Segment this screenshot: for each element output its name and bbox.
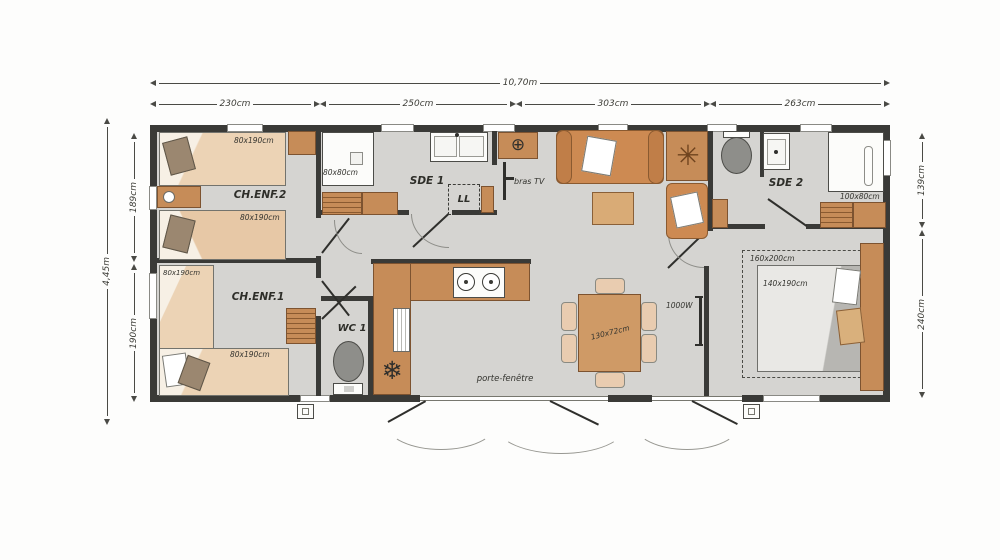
arrow-down-icon [131,396,137,402]
door-swing-arc [496,398,626,454]
bed-size-label: 80x190cm [240,213,280,222]
bed-size-label: 80x190cm [163,269,200,277]
chair [561,302,577,331]
bed-size-label: 80x190cm [230,350,270,359]
outer-wall-bottom [150,395,300,402]
water-heater-badge [344,386,354,392]
chair [595,372,625,388]
sofa-armrest [556,130,572,184]
window [300,395,330,402]
pillow [836,308,865,346]
dresser-drawers [820,202,853,228]
dim-top-1: 230cm [150,98,320,110]
burner-icon [457,273,475,291]
headboard [860,243,884,391]
dim-overall-height: 4,45m [100,118,114,425]
tv-mount-label: bras TV [514,177,544,186]
chair [595,278,625,294]
step-inner [302,408,309,415]
shower-tray [322,132,374,186]
burner-icon [482,273,500,291]
dim-label: 240cm [917,299,927,330]
dresser-top [853,202,886,228]
toilet [721,137,752,174]
cabinet [481,186,494,213]
shower-handle [864,146,873,186]
dim-overall-width: 10,70m [150,76,890,90]
dim-label: 139cm [917,165,927,196]
arrow-right-icon [884,80,890,86]
dim-top-2: 250cm [320,98,516,110]
dim-label: 4,45m [102,257,112,286]
shelf [288,131,316,155]
radiator [699,296,702,346]
bed-size-label: 140x190cm [763,279,808,288]
arrow-left-icon [516,101,522,107]
dresser [286,308,316,344]
radiator-bracket [695,296,703,298]
arrow-up-icon [104,118,110,124]
window [483,124,515,132]
dim-label: 189cm [129,182,139,213]
window [763,395,820,402]
lamp-icon [163,191,175,203]
arrow-down-icon [131,256,137,262]
radiator-power-label: 1000W [666,301,693,310]
dim-top-3: 303cm [516,98,710,110]
arrow-down-icon [104,419,110,425]
dim-label: 230cm [220,99,251,109]
arrow-left-icon [150,80,156,86]
shower-drain-icon [350,152,363,165]
arrow-left-icon [710,101,716,107]
patio-door-label: porte-fenêtre [450,374,560,384]
dim-top-4: 263cm [710,98,890,110]
shower [828,132,884,192]
basin [459,136,484,157]
arrow-left-icon [320,101,326,107]
window [800,124,832,132]
fridge-icon: ❄ [377,355,407,385]
interior-wall [316,316,321,396]
outer-wall-bottom [820,395,890,402]
room-label-wc-1: WC 1 [330,322,374,334]
washing-machine-label: LL [458,194,471,205]
sofa-armrest [648,130,664,184]
door-swing-arc [386,398,496,450]
arrow-up-icon [919,133,925,139]
dim-label: 10,70m [503,78,538,88]
interior-wall [704,266,709,396]
window [883,140,891,176]
window [149,273,157,319]
floor-plan: 10,70m 230cm 250cm 303cm 263cm 4,45m 189… [0,0,1000,560]
room-label-sde-2: SDE 2 [766,177,806,189]
outer-wall-bottom [608,395,652,402]
dim-right-1: 139cm [916,133,928,228]
window [227,124,263,132]
cabinet [712,199,728,228]
faucet-icon [774,150,778,154]
interior-wall [492,131,497,165]
dim-label: 250cm [403,99,434,109]
vanity-drawers [322,192,362,215]
shower-size-label: 80x80cm [323,168,358,177]
chair [641,302,657,331]
bed-zone-label: 160x200cm [750,254,795,263]
interior-wall [321,296,373,301]
dim-label: 303cm [598,99,629,109]
door-swing-arc [634,398,740,450]
step-inner [748,408,755,415]
dim-label: 190cm [129,318,139,349]
faucet-icon [455,133,459,137]
dim-right-2: 240cm [916,230,928,398]
arrow-left-icon [150,101,156,107]
ceiling-light-icon: ⊕ [508,135,528,155]
outer-wall-left [150,125,157,402]
outer-wall-bottom [330,395,420,402]
tv-arm [506,177,514,180]
tv-screen [503,162,506,200]
vanity-counter [362,192,398,215]
oven [393,308,410,352]
pillow [581,136,617,177]
room-label-sde-1: SDE 1 [404,174,450,187]
arrow-up-icon [131,133,137,139]
dim-label: 263cm [785,99,816,109]
arrow-up-icon [919,230,925,236]
arrow-up-icon [131,264,137,270]
arrow-right-icon [884,101,890,107]
arrow-down-icon [919,222,925,228]
washing-machine-slot: LL [448,184,480,215]
window [381,124,414,132]
bed-size-label: 80x190cm [234,136,274,145]
chair [641,334,657,363]
toilet [333,341,364,382]
outer-wall-bottom [742,395,763,402]
coffee-table [592,192,634,225]
chair [561,334,577,363]
room-label-ch-enf-1: CH.ENF.1 [222,290,294,304]
rosette-icon: ✳ [672,136,704,176]
dim-left-1: 189cm [128,133,140,262]
arrow-down-icon [919,392,925,398]
pillow [832,268,861,306]
basin [434,136,457,157]
shower-size-label: 100x80cm [840,192,880,201]
interior-wall [316,131,321,218]
window [149,186,157,210]
dim-left-2: 190cm [128,264,140,402]
room-label-ch-enf-2: CH.ENF.2 [224,188,296,202]
bed-single [159,265,214,349]
radiator-bracket [695,344,703,346]
